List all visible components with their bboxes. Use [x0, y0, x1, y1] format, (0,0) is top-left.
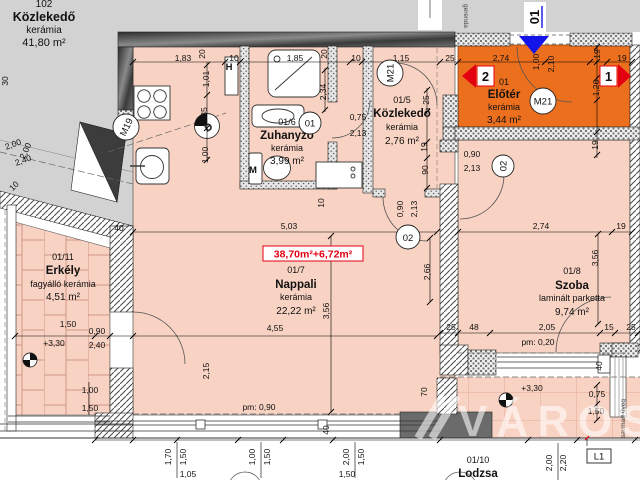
- dimension-label: 25: [445, 53, 455, 63]
- dimension-label: 25: [626, 322, 636, 332]
- dimension-label: 19: [592, 49, 602, 59]
- dimension-label: 40: [594, 361, 604, 371]
- room-number: 01/10: [467, 455, 490, 465]
- dimension-label: 1,70: [163, 448, 173, 465]
- dimension-label: 19: [616, 221, 626, 231]
- area-callout-text: 38,70m²+6,72m²: [274, 249, 353, 261]
- window-tag-m21-label: M21: [534, 97, 552, 108]
- dimension-label: +3,30: [43, 338, 65, 348]
- room-number: 102: [36, 0, 53, 10]
- room-area: 2,76 m²: [385, 136, 420, 147]
- beam-note: gerenda: [462, 4, 469, 28]
- door-tag-02b-label: 02: [499, 161, 510, 172]
- room-finish: kerámia: [26, 25, 62, 36]
- room-name: Nappali: [275, 279, 317, 291]
- room-number: 01/8: [563, 266, 581, 276]
- dimension-label: 0,90: [89, 326, 106, 336]
- room-name: Közlekedő: [13, 10, 76, 24]
- dimension-label: 2,13: [350, 128, 367, 138]
- room-finish: kerámia: [386, 122, 418, 132]
- tag-l1-label: L1: [594, 452, 605, 463]
- dimension-label: 0,90: [395, 200, 405, 217]
- room-area: 41,80 m²: [22, 37, 66, 49]
- dimension-label: 2,00: [544, 454, 554, 471]
- room-area: 9,74 m²: [555, 307, 590, 318]
- dimension-label: 20: [197, 49, 207, 59]
- erkely-wall-lower: [110, 368, 133, 415]
- dimension-label: 2,00: [341, 448, 351, 465]
- dimension-label: 25: [421, 95, 431, 105]
- dimension-label: 19: [590, 140, 600, 150]
- room-area: 3,44 m²: [487, 115, 522, 126]
- zuhanyzo-wall-left: [240, 46, 249, 188]
- door-tag-02-label: 02: [403, 233, 414, 244]
- dimension-label: 25: [446, 322, 456, 332]
- room-finish: kerámia: [280, 292, 312, 302]
- room-finish: laminált parketta: [539, 293, 605, 303]
- floor-plan-drawing: D 1,8320101,8520101,15252,741,002,101919…: [0, 0, 640, 480]
- route-left-label: 2: [482, 69, 489, 84]
- dimension-label: 3,56: [321, 302, 331, 319]
- dimension-label: 2,40: [89, 340, 106, 350]
- floor-plan-page: D 1,8320101,8520101,15252,741,002,101919…: [0, 0, 640, 480]
- room-area: 22,22 m²: [276, 306, 316, 317]
- dimension-label: 15: [604, 322, 614, 332]
- eloter-wall-bottom: [455, 127, 640, 140]
- door-tag-01-label: 01: [305, 119, 316, 130]
- dimension-label: 85: [199, 107, 209, 117]
- room-name: Közlekedő: [373, 108, 431, 120]
- dimension-label: pm: 0,20: [521, 337, 554, 347]
- dimension-label: 19: [419, 142, 429, 152]
- dimension-label: 2,13: [464, 163, 481, 173]
- room-number: 01/6: [278, 117, 296, 127]
- dimension-label: 10: [316, 198, 326, 208]
- dimension-label: 4,55: [267, 323, 284, 333]
- dimension-label: 1,50: [82, 403, 99, 413]
- dimension-label: 40: [321, 425, 331, 435]
- dimension-label: 2,05: [539, 322, 556, 332]
- dimension-label: 2,34: [318, 83, 328, 100]
- dimension-label: 90: [420, 165, 430, 175]
- dimension-label: 1,01: [201, 70, 211, 87]
- erkely-wall-upper: [110, 226, 133, 312]
- room-number: 01/7: [287, 265, 305, 275]
- dimension-label: 30: [0, 76, 10, 86]
- dimension-label: 70: [419, 387, 429, 397]
- dimension-label: 1,00: [247, 448, 257, 465]
- dimension-label: 0,75: [350, 112, 367, 122]
- washer-label: M: [249, 165, 257, 176]
- dimension-label: 2,74: [493, 53, 510, 63]
- dimension-label: 2,13: [409, 200, 419, 217]
- dimension-label: 19: [617, 53, 627, 63]
- dimension-label: 1,00: [82, 385, 99, 395]
- dimension-label: 3,56: [590, 249, 600, 266]
- room-number: 01/11: [52, 252, 74, 262]
- watermark-text: VÁROSI: [458, 396, 640, 446]
- room-name: Lodzsa: [458, 468, 498, 480]
- dimension-label: 2,15: [201, 362, 211, 379]
- dimension-label: 1,00: [531, 53, 541, 70]
- dimension-label: 40: [114, 223, 124, 233]
- dimension-label: 2,66: [422, 263, 432, 280]
- eloter-wall-left: [443, 95, 458, 129]
- area-callout: 38,70m²+6,72m²: [263, 246, 363, 261]
- dimension-label: 20: [319, 49, 329, 59]
- erkely-outer-wall: [7, 205, 16, 431]
- dimension-label: 2,74: [533, 221, 550, 231]
- dimension-label: 1,05: [180, 469, 197, 479]
- dimension-label: 1,85: [287, 53, 304, 63]
- entrance-label: 01: [527, 10, 542, 24]
- window-tag-m21b-label: M21: [386, 64, 397, 82]
- dimension-label: 1,50: [60, 319, 77, 329]
- level-symbol-erkely: [23, 353, 37, 367]
- room-finish: fagyálló kerámia: [30, 279, 96, 289]
- dimension-label: +3,30: [521, 383, 543, 393]
- room-name: Előtér: [488, 89, 521, 101]
- dimension-label: 1,00: [200, 146, 210, 163]
- room-finish: kerámia: [488, 102, 520, 112]
- entry-wall-right: [570, 33, 632, 46]
- room-number: 01: [499, 77, 509, 87]
- dimension-label: 2,20: [558, 454, 568, 471]
- stove: [134, 86, 170, 120]
- dimension-label: 1,83: [175, 53, 192, 63]
- zuhanyzo-wall-right-a: [328, 46, 337, 102]
- dimension-label: 1,50: [339, 469, 356, 479]
- right-wall: [630, 45, 640, 353]
- left-wall: [118, 47, 133, 110]
- room-name: Szoba: [555, 280, 589, 292]
- dimension-label: 5,03: [281, 221, 298, 231]
- dimension-label: 10: [351, 53, 361, 63]
- room-area: 4,51 m²: [46, 292, 81, 303]
- dimension-label: 1,50: [178, 448, 188, 465]
- dimension-label: 0,90: [464, 149, 481, 159]
- dimension-label: 48: [469, 322, 479, 332]
- room-number: 01/5: [393, 95, 411, 105]
- dimension-label: 2,10: [546, 55, 556, 72]
- fridge-label: H: [226, 62, 233, 73]
- room-area: 3,99 m²: [270, 156, 305, 167]
- dimension-label: 1,50: [262, 448, 272, 465]
- entry-wall-left: [455, 33, 510, 46]
- dimension-label: 1,50: [356, 448, 366, 465]
- route-right-label: 1: [605, 69, 612, 84]
- dimension-label: pm: 0,90: [242, 402, 275, 412]
- room-finish: kerámia: [271, 143, 303, 153]
- room-name: Erkély: [46, 265, 81, 277]
- top-wall: [118, 32, 455, 47]
